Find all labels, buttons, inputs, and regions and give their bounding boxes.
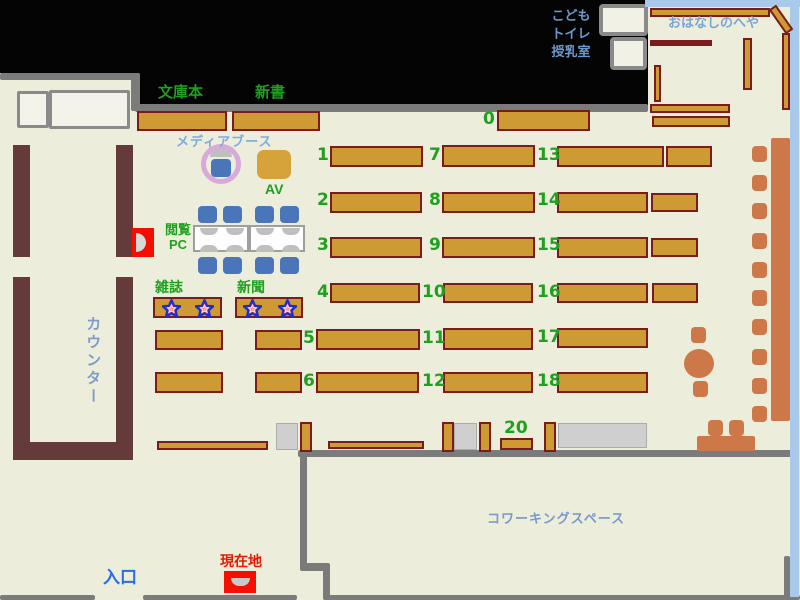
wall	[0, 73, 140, 80]
shelf-low-mid	[328, 441, 424, 449]
shelf-number-15: 15	[537, 237, 561, 254]
chair	[198, 257, 217, 274]
shelf-paperback	[137, 111, 227, 131]
counter-desk	[116, 145, 133, 257]
shelf-10	[443, 283, 533, 303]
shelf-number-2: 2	[317, 192, 329, 209]
chair	[280, 257, 299, 274]
media-booth-label: メディアブース	[176, 135, 272, 150]
shelf-number-10: 10	[422, 284, 446, 301]
shelf-2	[330, 192, 422, 213]
shelf-number-3: 3	[317, 237, 329, 254]
stool	[729, 420, 744, 436]
kids-toilet-room	[599, 4, 648, 36]
shelf-7	[442, 145, 535, 167]
shelf-16b	[652, 283, 698, 303]
chair	[280, 206, 299, 223]
gray-table	[558, 423, 647, 448]
shelf-12	[443, 372, 533, 393]
shelf-9	[442, 237, 535, 258]
shelf-number-5: 5	[303, 330, 315, 347]
star-icon	[278, 299, 297, 318]
coworking-space-label: コワーキングスペース	[487, 512, 625, 527]
shelf-5	[316, 329, 420, 350]
back-room	[17, 91, 49, 128]
stool	[691, 327, 706, 343]
shelf-number-4: 4	[317, 284, 329, 301]
shelf-number-6: 6	[303, 373, 315, 390]
wall	[325, 595, 800, 600]
shelf-13	[557, 146, 664, 167]
stool	[752, 319, 767, 335]
current-location-marker	[224, 571, 256, 593]
kids-toilet-room	[610, 37, 647, 70]
shelf-15b	[651, 238, 698, 257]
pc-seat-icon	[282, 245, 300, 252]
back-room	[49, 90, 130, 129]
reading-pc-label: 閲覧 PC	[160, 223, 196, 253]
stool	[752, 406, 767, 422]
shelf-end-2	[442, 422, 454, 452]
stool	[752, 290, 767, 306]
shelf-number-0: 0	[483, 111, 495, 128]
shelf-number-13: 13	[537, 147, 561, 164]
shelf-number-17: 17	[537, 329, 561, 346]
shelf-new-books	[232, 111, 320, 131]
current-location-label: 現在地	[220, 553, 262, 569]
shelf-14	[557, 192, 648, 213]
shelf-number-11: 11	[422, 330, 446, 347]
shelf-number-9: 9	[429, 237, 441, 254]
media-booth-ring	[201, 144, 241, 184]
pc-seat-icon	[226, 245, 244, 252]
shelf-row5-mid	[255, 330, 302, 350]
stool	[752, 378, 767, 394]
shelf-storyroom-mid	[743, 38, 752, 90]
stool	[693, 381, 708, 397]
chair	[223, 257, 242, 274]
shelf-storyroom-lower1	[650, 104, 730, 113]
newspapers-label: 新聞	[237, 279, 265, 295]
shelf-number-14: 14	[537, 192, 561, 209]
bench-shelf	[650, 40, 712, 46]
av-booth	[257, 150, 291, 179]
chair	[255, 206, 274, 223]
shelf-number-20: 20	[504, 420, 528, 437]
counter-desk	[13, 442, 133, 460]
shelf-15	[557, 237, 648, 258]
shelf-low-left	[157, 441, 268, 450]
new-books-label: 新書	[255, 84, 285, 101]
star-icon	[195, 299, 214, 318]
shelf-end-1	[300, 422, 312, 452]
shelf-1	[330, 146, 423, 167]
shelf-end-3	[479, 422, 491, 452]
wall	[300, 450, 307, 570]
orange-bench	[697, 436, 755, 451]
shelf-3	[330, 237, 422, 258]
shelf-0	[497, 110, 590, 131]
shelf-20	[500, 438, 533, 450]
kids-toilet-nursing-label: こども トイレ 授乳室	[541, 7, 601, 61]
shelf-16	[557, 283, 648, 303]
orange-bench	[771, 138, 790, 421]
shelf-17	[557, 328, 648, 348]
round-table	[684, 349, 714, 378]
stool	[752, 175, 767, 191]
shelf-number-8: 8	[429, 192, 441, 209]
shelf-11	[443, 328, 533, 350]
shelf-14b	[651, 193, 698, 212]
shelf-number-16: 16	[537, 284, 561, 301]
shelf-number-18: 18	[537, 373, 561, 390]
shelf-number-12: 12	[422, 373, 446, 390]
counter-desk	[116, 277, 133, 460]
shelf-row6-left	[155, 372, 223, 393]
paperback-label: 文庫本	[158, 84, 203, 101]
slot-moon-icon	[136, 233, 146, 252]
gray-table	[454, 423, 477, 450]
shelf-6	[316, 372, 419, 393]
shelf-13b	[666, 146, 712, 167]
shelf-storyroom-left	[654, 65, 661, 102]
av-label: AV	[265, 181, 283, 197]
stool	[752, 349, 767, 365]
shelf-storyroom-lower2	[652, 116, 730, 127]
wall	[143, 595, 297, 600]
counter-desk	[13, 145, 30, 257]
stool	[752, 233, 767, 249]
star-icon	[243, 299, 262, 318]
shelf-row6-mid	[255, 372, 302, 393]
shelf-end-4	[544, 422, 556, 452]
magazines-label: 雑誌	[155, 279, 183, 295]
stool	[708, 420, 723, 436]
wall	[0, 595, 95, 600]
gray-table	[276, 423, 298, 450]
book-return-slot	[132, 228, 154, 257]
shelf-4	[330, 283, 420, 303]
stool	[752, 262, 767, 278]
stool	[752, 203, 767, 219]
counter-label: カウンター	[84, 316, 101, 406]
stool	[752, 146, 767, 162]
shelf-8	[442, 192, 535, 213]
chair	[198, 206, 217, 223]
shelf-row5-left	[155, 330, 223, 350]
pc-seat-icon	[256, 245, 274, 252]
shelf-18	[557, 372, 648, 393]
pc-seat-icon	[200, 245, 218, 252]
marker-moon-icon	[231, 578, 250, 586]
shelf-number-1: 1	[317, 147, 329, 164]
star-icon	[162, 299, 181, 318]
counter-desk	[13, 277, 30, 460]
library-floor-map: 文庫本 新書 メディアブース AV 閲覧 PC 雑誌 新聞 カウンター こども …	[0, 0, 800, 600]
entrance-label: 入口	[103, 568, 137, 588]
window-wall	[790, 0, 799, 597]
chair	[255, 257, 274, 274]
shelf-storyroom-right	[782, 33, 790, 110]
chair	[223, 206, 242, 223]
story-room-label: おはなしのへや	[668, 16, 759, 31]
black-backstage-area	[0, 0, 140, 73]
shelf-number-7: 7	[429, 147, 441, 164]
